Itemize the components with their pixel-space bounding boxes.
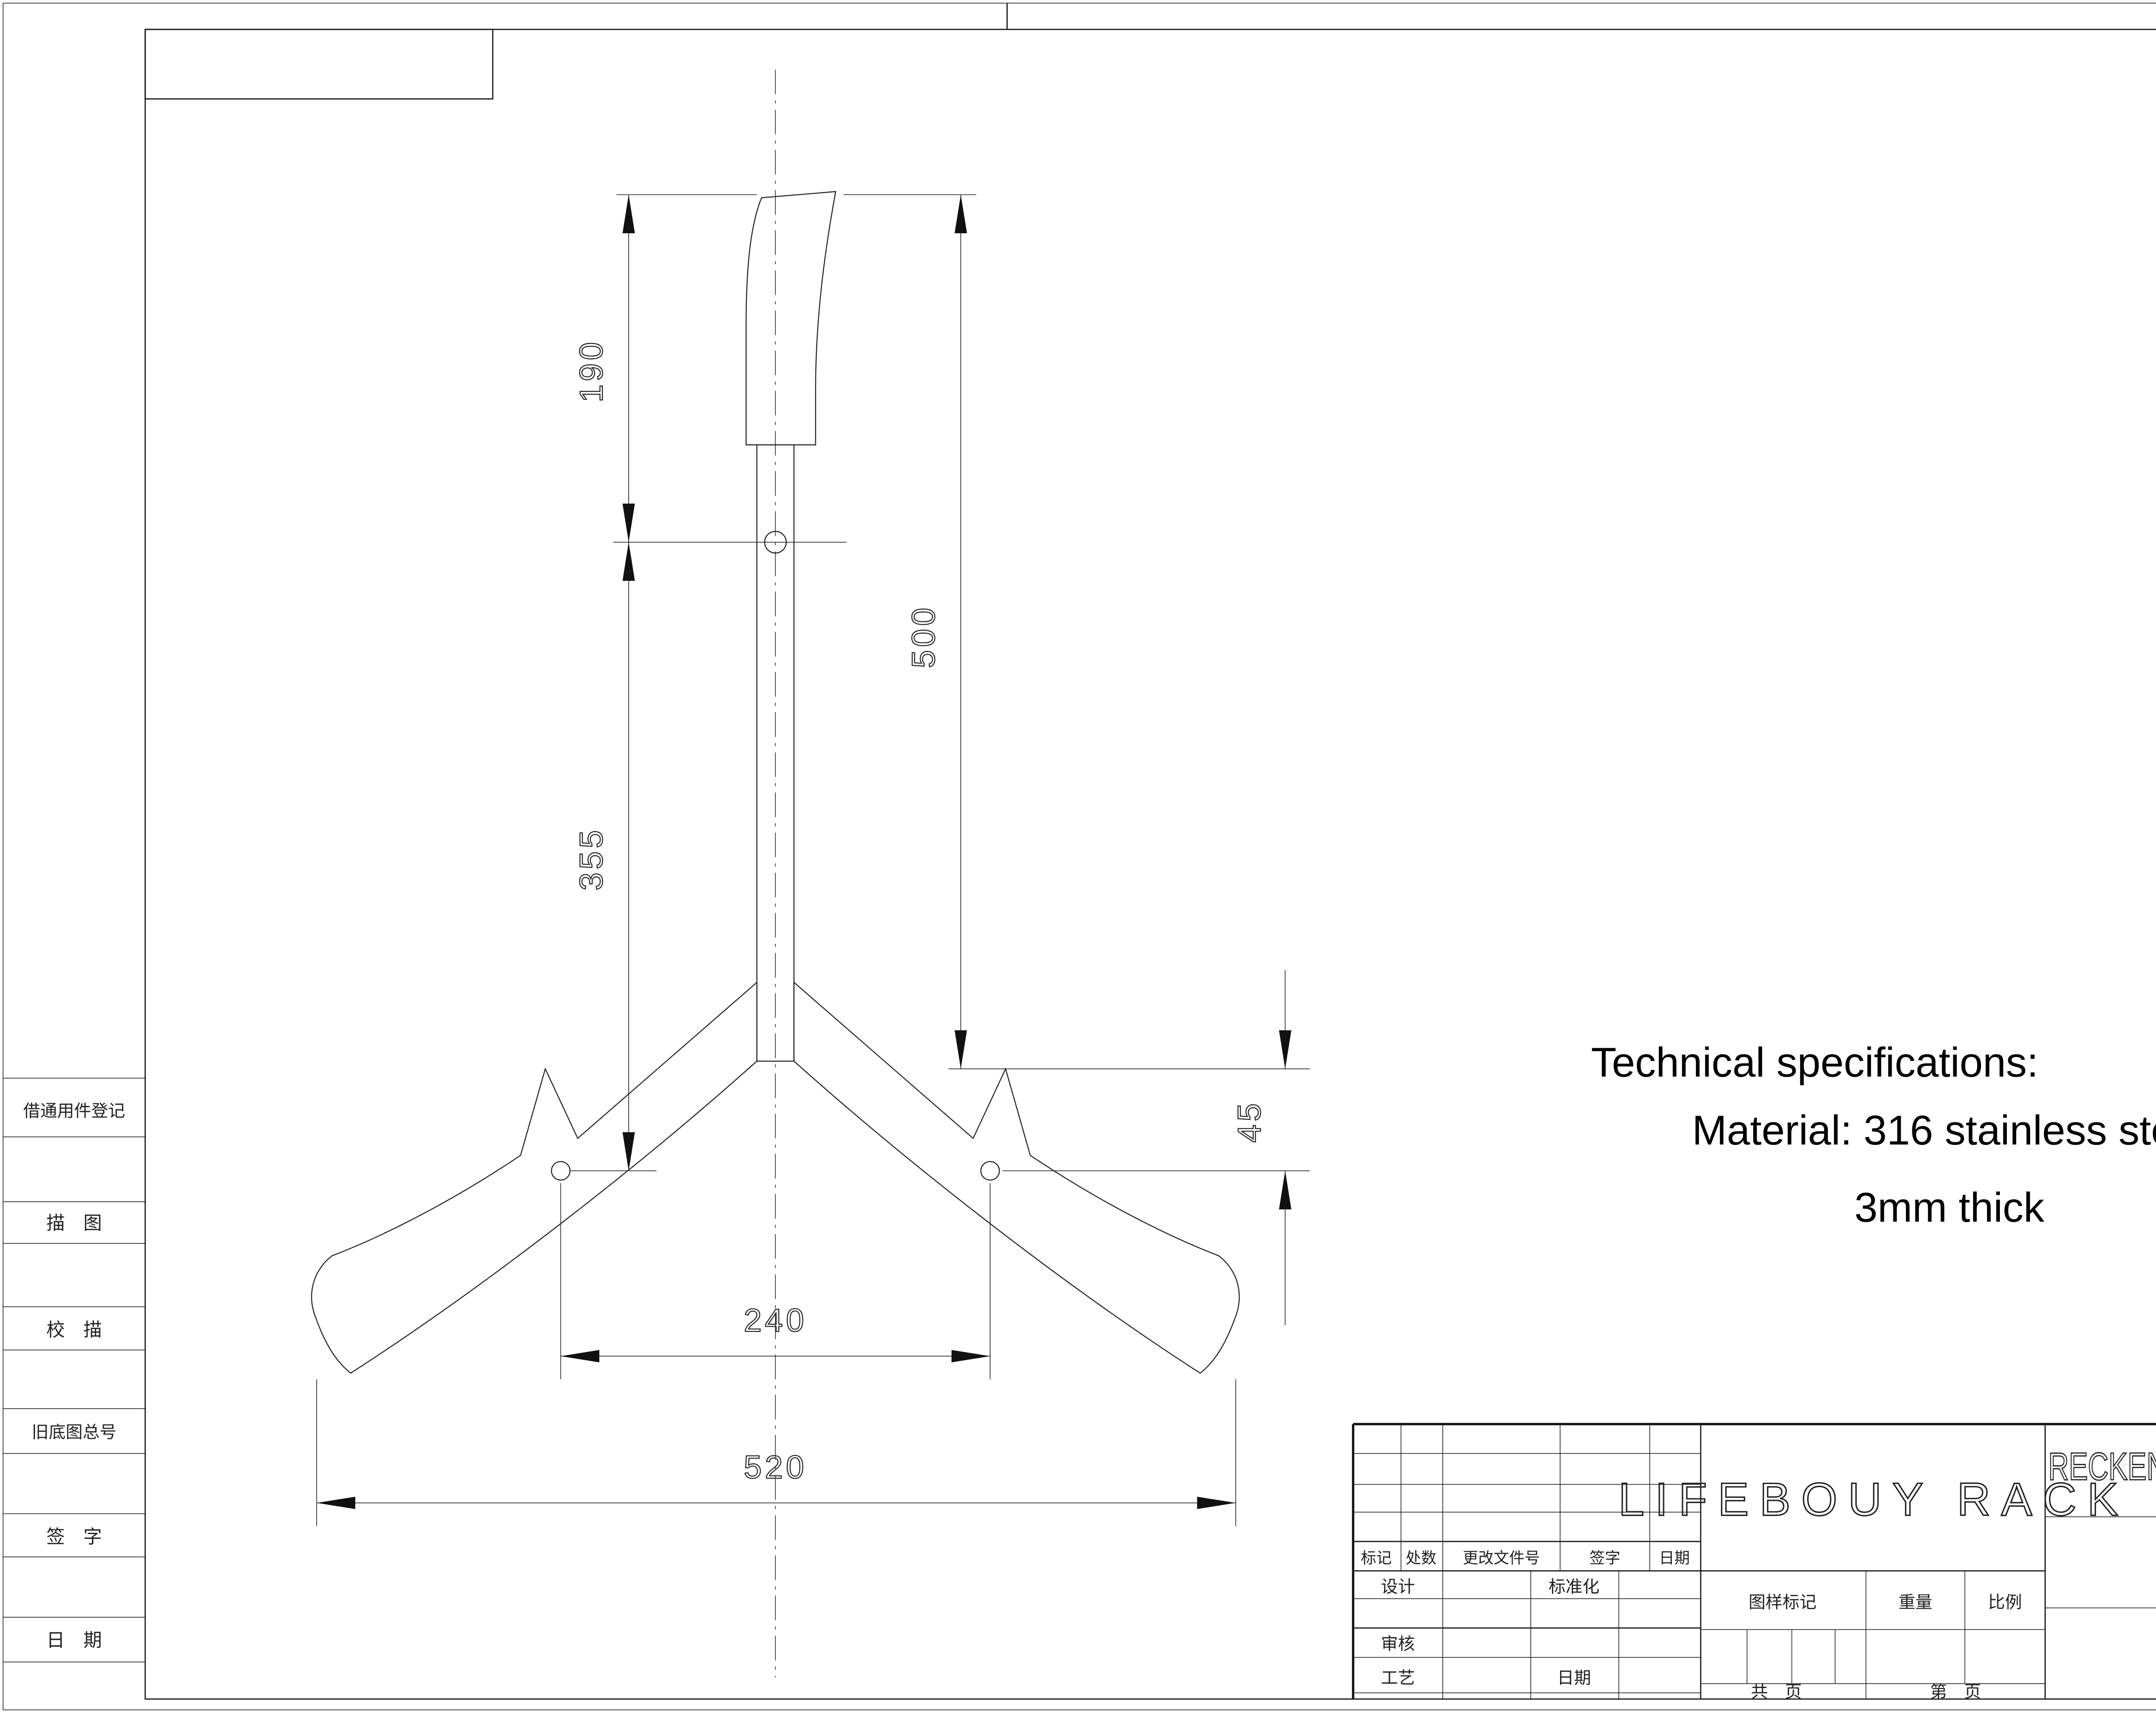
- field-sheet-no: 第 页: [1930, 1682, 1981, 1701]
- dim-value-500: 500: [905, 605, 941, 668]
- field-scale: 比例: [1988, 1593, 2022, 1612]
- arrowhead-down-icon: [955, 1030, 967, 1069]
- dim-value-355: 355: [573, 827, 609, 890]
- margin-label: 旧底图总号: [31, 1423, 116, 1442]
- lifebuoy-rack-view: [312, 69, 1239, 1677]
- dimensions: 190 355 500 45: [317, 194, 1310, 1526]
- tech-specs-note: Technical specifications: Material: 316 …: [1591, 1039, 2156, 1231]
- tech-specs-material: Material: 316 stainless steel: [1692, 1107, 2156, 1154]
- rev-header-date: 日期: [1659, 1549, 1690, 1566]
- arrowhead-right-icon: [952, 1350, 990, 1362]
- dim-355: 355: [573, 542, 635, 1171]
- dim-190: 190: [573, 194, 635, 542]
- field-total-sheets: 共 页: [1751, 1682, 1802, 1701]
- margin-label: 校 描: [46, 1320, 102, 1340]
- dim-value-520: 520: [744, 1449, 807, 1485]
- rev-header-mark: 标记: [1361, 1549, 1392, 1566]
- role-design: 设计: [1381, 1577, 1415, 1596]
- arrowhead-left-icon: [317, 1497, 355, 1509]
- dim-520: 520: [317, 1379, 1235, 1526]
- margin-label: 签 字: [46, 1527, 102, 1547]
- drawing-frame: [145, 29, 2156, 1699]
- dim-45: 45: [1231, 970, 1291, 1325]
- company-name: RECKEN MARINE LIMITED: [2048, 1445, 2156, 1488]
- left-margin-table: 借通用件登记 描 图 校 描 旧底图总号 签 字 日 期: [3, 1078, 145, 1662]
- dim-value-240: 240: [744, 1302, 807, 1338]
- title-block: 标记 处数 更改文件号 签字 日期 设计 标准化 审核 工艺 日期 LIFEBO…: [1353, 1424, 2156, 1701]
- arrowhead-down-icon: [623, 504, 635, 542]
- arrowhead-right-icon: [1197, 1497, 1236, 1509]
- tech-specs-title: Technical specifications:: [1591, 1039, 2039, 1086]
- top-hook: [746, 191, 836, 445]
- left-leg-hole: [552, 1162, 570, 1180]
- dim-value-45: 45: [1231, 1100, 1267, 1143]
- arrowhead-up-icon: [623, 194, 635, 233]
- rev-header-count: 处数: [1406, 1549, 1437, 1566]
- right-leg-hole: [981, 1162, 1000, 1180]
- role-check: 审核: [1381, 1635, 1415, 1653]
- arrowhead-up-icon: [623, 542, 635, 581]
- dim-500: 500: [905, 194, 967, 1069]
- rev-header-sign: 签字: [1589, 1549, 1620, 1566]
- role-date: 日期: [1557, 1669, 1591, 1688]
- margin-label: 日 期: [46, 1630, 102, 1651]
- role-process: 工艺: [1381, 1669, 1415, 1688]
- field-weight: 重量: [1899, 1593, 1933, 1612]
- outer-border: [3, 3, 2156, 1710]
- rev-header-docno: 更改文件号: [1463, 1549, 1540, 1566]
- role-standardization: 标准化: [1548, 1577, 1599, 1596]
- arrowhead-up-icon: [955, 194, 967, 233]
- margin-label: 借通用件登记: [23, 1102, 125, 1121]
- dim-value-190: 190: [573, 339, 609, 402]
- right-leg: [794, 982, 1239, 1373]
- arrowhead-up-icon: [1279, 1171, 1291, 1209]
- tech-specs-thickness: 3mm thick: [1854, 1184, 2044, 1231]
- left-leg: [312, 982, 757, 1373]
- arrowhead-left-icon: [561, 1350, 599, 1362]
- top-left-spare-box: [145, 29, 493, 99]
- field-drawing-mark: 图样标记: [1749, 1593, 1817, 1612]
- arrowhead-down-icon: [1279, 1030, 1291, 1069]
- margin-label: 描 图: [46, 1213, 102, 1234]
- arrowhead-down-icon: [623, 1132, 635, 1171]
- drawing-sheet: 借通用件登记 描 图 校 描 旧底图总号 签 字 日 期: [0, 0, 2156, 1713]
